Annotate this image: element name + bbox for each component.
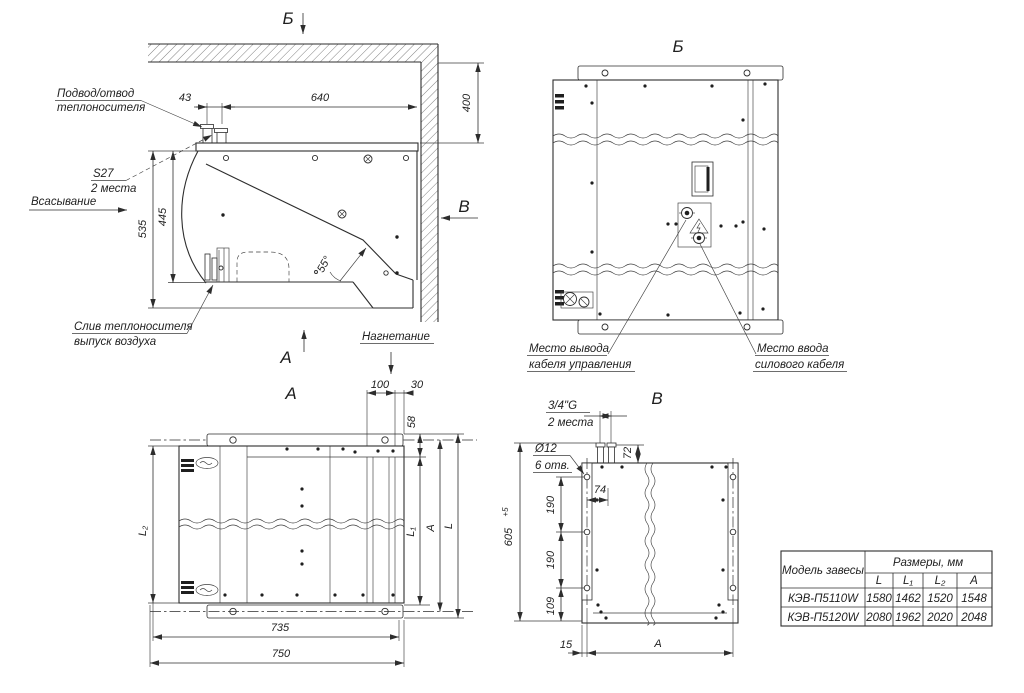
label-s27-line1: S27 [93, 168, 114, 180]
heat-pipes [596, 443, 616, 463]
dim-A: А [425, 524, 437, 532]
fasteners [221, 155, 408, 275]
marker-v: В [458, 197, 469, 216]
label-drain-line2: выпуск воздуха [74, 336, 156, 348]
callout-holes: Ø12 6 отв. [533, 443, 584, 474]
marker-a: А [279, 348, 291, 367]
dim-750: 750 [272, 648, 291, 660]
view-b-title: Б [672, 37, 683, 56]
table-col-L: L [876, 575, 882, 587]
dim-72: 72 [622, 447, 634, 459]
ceiling-hatch [148, 44, 438, 62]
view-a: А [137, 379, 477, 667]
label-supply-line1: Подвод/отвод [57, 88, 134, 100]
suction-label: Всасывание [29, 196, 127, 210]
dim-190-lower: 190 [545, 550, 557, 569]
table-cell-model-1: КЭВ-П5110W [788, 593, 859, 605]
table-cell-A-1: 1548 [961, 593, 987, 605]
table-cell-L-2: 2080 [865, 612, 892, 624]
dim-30: 30 [411, 379, 424, 391]
bottom-panel [179, 446, 404, 603]
marker-b: Б [282, 9, 293, 28]
wall-hatch [421, 62, 438, 322]
label-discharge: Нагнетание [362, 331, 430, 343]
dim-400: 400 [461, 93, 473, 112]
table-col-L2: L₂ [935, 575, 946, 587]
spec-table: Модель завесы Размеры, мм L L₁ L₂ A КЭВ-… [781, 551, 992, 626]
table-cell-L-1: 1580 [866, 593, 892, 605]
dim-left: 535 445 [137, 151, 373, 308]
mount-bracket-top [578, 66, 783, 80]
dim-L2: L₂ [137, 525, 149, 536]
label-thread-1: 3/4"G [548, 400, 577, 412]
label-drain-line1: Слив теплоносителя [74, 321, 193, 333]
dim-15: 15 [560, 639, 573, 651]
view-b: Б [527, 37, 847, 372]
view-v: В 3/4"G 2 места 72 [501, 389, 738, 657]
label-power-cable-2: силового кабеля [755, 359, 844, 371]
dim-A: А [653, 638, 661, 650]
label-control-cable-1: Место вывода [529, 343, 609, 355]
dim-right: 58 L₁ А L [404, 415, 464, 618]
dim-58: 58 [406, 415, 418, 428]
drain-detail [205, 248, 289, 282]
label-thread-2: 2 места [547, 417, 593, 429]
air-curtain-body: 55° [182, 143, 418, 308]
callout-drain: Слив теплоносителя выпуск воздуха [72, 285, 213, 348]
view-a-title: А [284, 384, 296, 403]
table-cell-L2-2: 2020 [926, 612, 953, 624]
dim-top: 43 640 [179, 92, 417, 124]
table-cell-L1-1: 1462 [895, 593, 921, 605]
discharge-label: Нагнетание [360, 331, 434, 374]
table-cell-L1-2: 1962 [895, 612, 921, 624]
heat-pipes [201, 125, 228, 144]
discharge-angle: 55° [315, 248, 367, 281]
mount-bracket-bottom [578, 320, 783, 334]
dim-100: 100 [371, 379, 390, 391]
table-cell-model-2: КЭВ-П5120W [788, 612, 860, 624]
label-power-cable-1: Место ввода [757, 343, 829, 355]
drawing-sheet: 55° 43 640 400 535 445 Подвод/отвод тепл… [0, 0, 1024, 693]
table-header-model: Модель завесы [782, 565, 864, 577]
dim-735: 735 [271, 622, 290, 634]
dim-L1: L₁ [405, 527, 417, 537]
label-holes-1: Ø12 [534, 443, 557, 455]
rear-panel [553, 80, 778, 320]
dim-43: 43 [179, 92, 192, 104]
table-header-sizes: Размеры, мм [893, 557, 963, 569]
label-supply-line2: теплоносителя [57, 102, 145, 114]
inspection-window [692, 162, 713, 196]
table-col-L1: L₁ [903, 575, 913, 587]
dim-445: 445 [157, 207, 169, 226]
callout-s27: S27 2 места [90, 135, 212, 195]
dim-535: 535 [137, 219, 149, 238]
dim-605: 605 [503, 527, 515, 546]
dim-74: 74 [594, 484, 606, 496]
view-v-title: В [651, 389, 662, 408]
dim-72-group: 72 [616, 445, 644, 463]
label-suction: Всасывание [31, 196, 96, 208]
label-control-cable-2: кабеля управления [529, 359, 631, 371]
label-s27-line2: 2 места [90, 183, 136, 195]
dim-L: L [443, 523, 455, 529]
dim-L2-group: L₂ [137, 446, 179, 603]
table-col-A: A [969, 575, 978, 587]
side-view: 55° 43 640 400 535 445 Подвод/отвод тепл… [29, 9, 484, 374]
table-cell-L2-1: 1520 [927, 593, 953, 605]
dim-190-upper: 190 [545, 495, 557, 514]
callout-thread: 3/4"G 2 места [546, 400, 627, 446]
dim-640: 640 [311, 92, 330, 104]
technical-drawing: 55° 43 640 400 535 445 Подвод/отвод тепл… [0, 0, 1024, 693]
dim-109: 109 [545, 597, 557, 615]
table-cell-A-2: 2048 [960, 612, 987, 624]
dim-605-tolerance: +5 [501, 507, 510, 517]
label-holes-2: 6 отв. [535, 460, 570, 472]
